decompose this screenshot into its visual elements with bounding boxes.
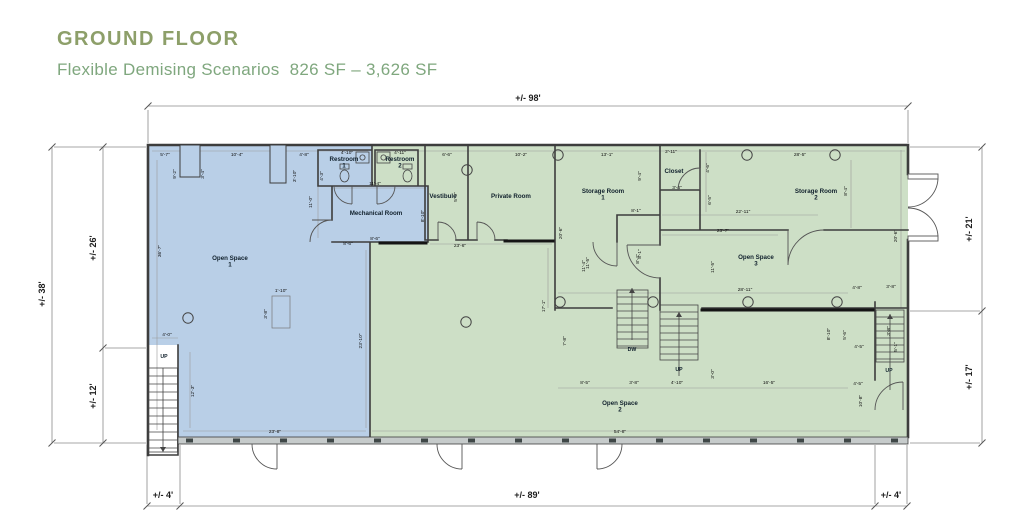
stair-label: UP: [675, 367, 683, 373]
dimension-label: 20'-6": [893, 230, 899, 243]
stair-label: UP: [885, 368, 893, 374]
dimension-label: 4'-8": [299, 152, 309, 158]
dimension-label: 8'-6": [343, 241, 353, 247]
dimension-label: 23'-8": [269, 429, 282, 435]
dimension-label: 11'-4": [369, 181, 381, 187]
dimension-label: 28'-11": [738, 287, 753, 293]
canvas: { "header": { "title": "GROUND FLOOR", "…: [0, 0, 1024, 519]
dimension-label: 17'-1": [541, 300, 547, 313]
floor-plan: +/- 98'+/- 38'+/- 26'+/- 12'+/- 21'+/- 1…: [0, 0, 1024, 519]
room-label: Closet: [665, 168, 684, 175]
dimension-label: +/- 12': [88, 383, 98, 408]
dimension-label: 22'-11": [736, 209, 751, 215]
dimension-label: 23'-7": [717, 228, 730, 234]
dimension-label: +/- 17': [964, 364, 974, 389]
dimension-label: +/- 4': [881, 490, 901, 500]
dimension-label: 8'-10": [826, 328, 832, 341]
stair-label: UP: [160, 354, 168, 360]
dimension-label: 6'-6": [442, 152, 452, 158]
dimension-label: 3'-8": [263, 309, 269, 319]
dimension-label: 11'-5": [710, 261, 716, 273]
dimension-label: 2'-11": [665, 149, 677, 155]
dimension-label: 3'-4": [200, 169, 206, 179]
dimension-label: 20'-6": [558, 227, 564, 240]
dimension-label: 4'-3": [319, 171, 325, 181]
dimension-label: 16'-5": [763, 380, 776, 386]
dimension-label: 8'-1": [631, 208, 641, 214]
room-label: Mechanical Room: [350, 210, 403, 217]
dimension-label: 13'-1": [601, 152, 614, 158]
dimension-label: 4'-5": [854, 344, 864, 350]
room-label: Private Room: [491, 193, 531, 200]
dimension-label: 8'-4": [635, 254, 641, 264]
stair-label: DW: [628, 347, 637, 353]
dimension-label: 4'-8": [852, 285, 862, 291]
dimension-label: 8'-5": [580, 380, 590, 386]
dimension-label: 4'-10": [671, 380, 684, 386]
dimension-label: 3'-8": [886, 284, 896, 290]
dimension-label: 12'-3": [190, 385, 196, 398]
dimension-label: 4'-0": [162, 332, 172, 338]
dimension-label: +/- 4': [153, 490, 173, 500]
dimension-label: 3'-0": [710, 369, 716, 379]
dimension-label: 23'-6": [454, 243, 467, 249]
dimension-label: 3'-8": [629, 380, 639, 386]
dimension-label: 54'-8": [614, 429, 627, 435]
dimension-label: 10'-2": [515, 152, 528, 158]
dimension-label: 8'-6": [370, 236, 380, 242]
dimension-label: 3'-8": [886, 326, 892, 336]
dimension-label: 6'-5": [707, 195, 713, 205]
dimension-label: 23'-10": [358, 333, 364, 348]
arrowhead-icon: [160, 447, 166, 452]
storefront-band: [178, 437, 908, 444]
dimension-label: 7'-8": [562, 336, 568, 346]
dimension-label: 4'-6": [705, 163, 711, 173]
dimension-label: 5'-6": [842, 330, 848, 340]
dimension-label: +/- 26': [88, 235, 98, 260]
dimension-label: 3'-4": [672, 185, 682, 191]
dimension-label: 9'-4": [637, 171, 643, 181]
dimension-label: 11'-0": [308, 196, 314, 208]
dimension-label: +/- 38': [37, 281, 47, 306]
dimension-label: +/- 98': [515, 93, 540, 103]
dimension-label: 8'-4": [843, 186, 849, 196]
dimension-label: +/- 89': [514, 490, 539, 500]
dimension-label: 11'-4": [581, 260, 587, 272]
dimension-label: 8'-10": [420, 210, 426, 223]
dimension-label: 5'-1": [893, 342, 899, 352]
room-label: Vestibule: [429, 193, 457, 200]
dimension-label: 10'-8": [858, 395, 864, 408]
dimension-label: 5'-7": [160, 152, 170, 158]
dimension-label: 28'-5": [794, 152, 807, 158]
dimension-label: 3'-10": [292, 170, 298, 183]
dimension-label: 1'-10": [275, 288, 288, 294]
dimension-label: +/- 21': [964, 216, 974, 241]
dimension-label: 36'-7": [157, 245, 163, 258]
dimension-label: 4'-5": [853, 381, 863, 387]
dimension-label: 10'-4": [231, 152, 244, 158]
dimension-label: 9'-2": [172, 169, 178, 179]
